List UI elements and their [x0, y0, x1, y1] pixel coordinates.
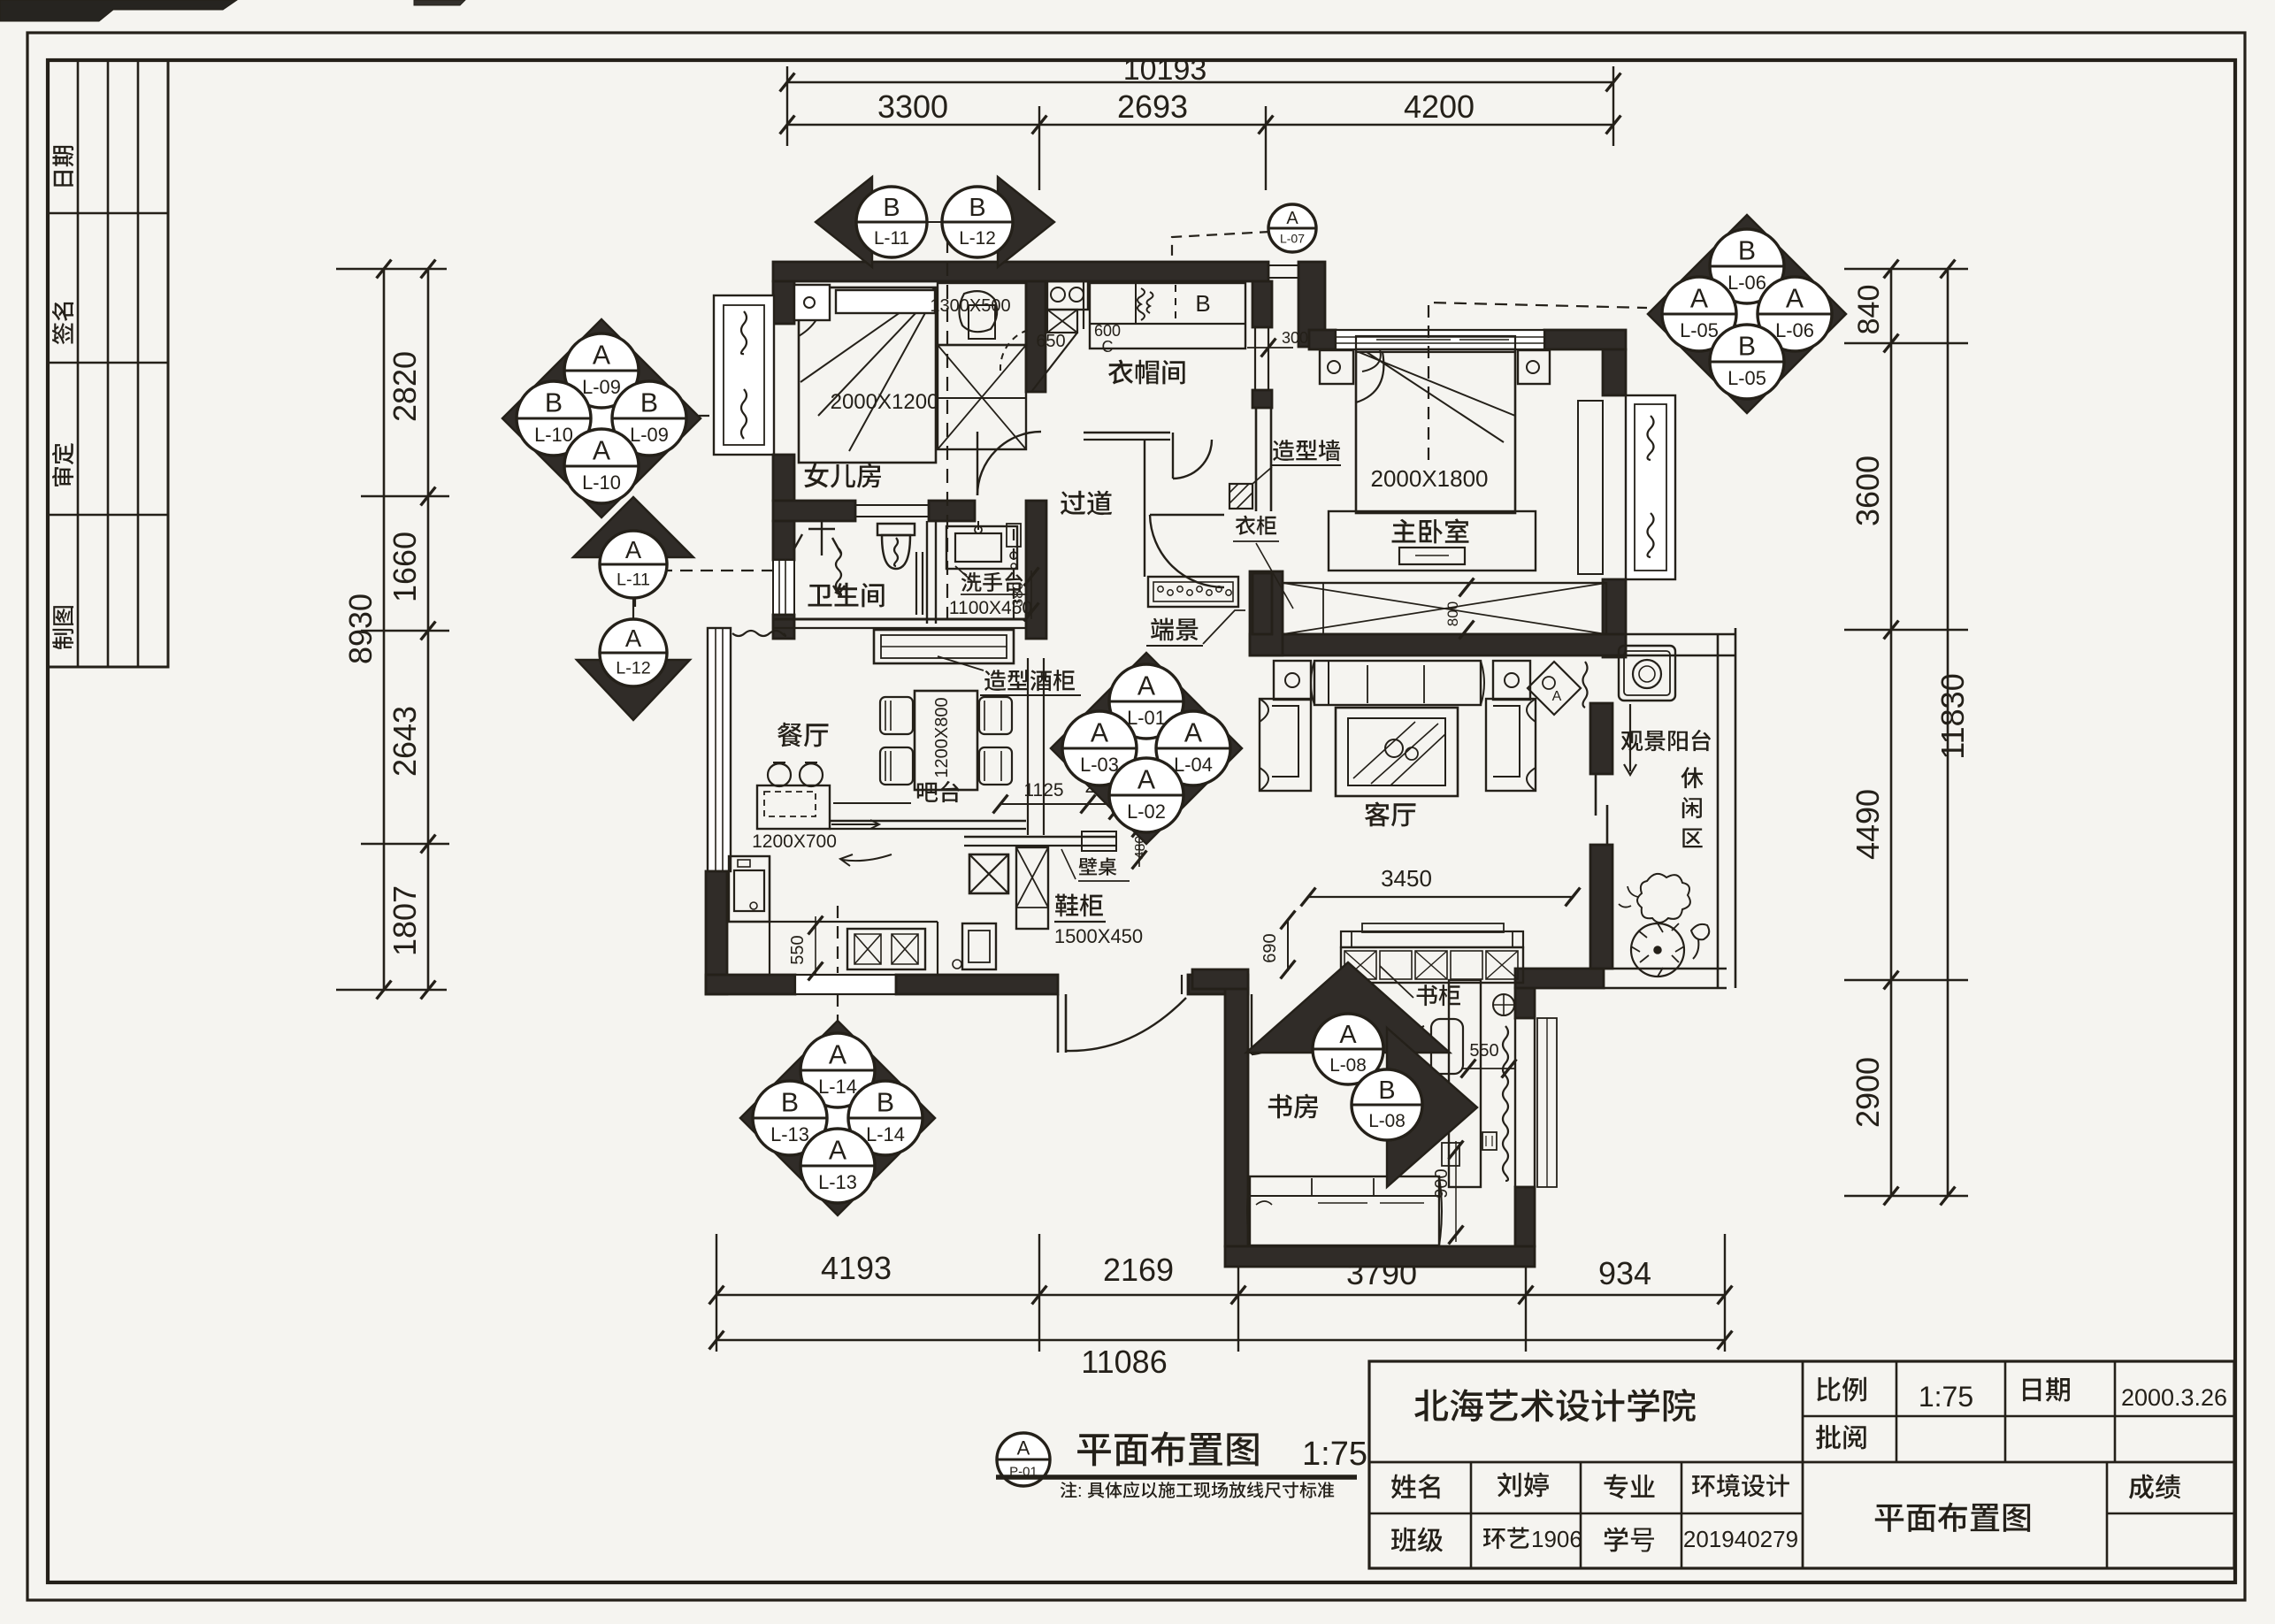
svg-text:B: B — [545, 388, 563, 417]
svg-text:A: A — [829, 1040, 847, 1069]
svg-text:A: A — [1339, 1021, 1357, 1049]
svg-text:L-13: L-13 — [770, 1123, 809, 1145]
svg-text:550: 550 — [1469, 1041, 1498, 1061]
svg-text:10193: 10193 — [1123, 53, 1207, 87]
svg-text:A: A — [829, 1136, 847, 1165]
svg-text:A: A — [625, 624, 642, 652]
svg-text:B: B — [969, 194, 985, 222]
svg-text:B: B — [1738, 332, 1756, 361]
svg-text:L-02: L-02 — [1127, 801, 1166, 823]
svg-text:L-01: L-01 — [1127, 707, 1166, 729]
svg-text:3450: 3450 — [1381, 865, 1432, 892]
svg-text:B: B — [781, 1088, 799, 1117]
svg-text:A: A — [1137, 671, 1156, 701]
svg-text:3600: 3600 — [1850, 456, 1886, 526]
svg-text:2820: 2820 — [387, 351, 423, 422]
svg-text:C: C — [1102, 338, 1114, 356]
svg-text:B: B — [640, 388, 658, 417]
svg-text:4490: 4490 — [1850, 789, 1886, 860]
svg-text:B: B — [883, 194, 900, 222]
svg-text:11830: 11830 — [1934, 673, 1971, 759]
svg-text:L-04: L-04 — [1174, 754, 1213, 776]
svg-text:A: A — [625, 536, 642, 563]
svg-text:2693: 2693 — [1117, 88, 1188, 125]
svg-text:650: 650 — [1036, 332, 1065, 351]
svg-text:2900: 2900 — [1850, 1057, 1886, 1128]
svg-text:1:75: 1:75 — [1919, 1381, 1973, 1413]
svg-text:A: A — [1552, 689, 1562, 704]
svg-text:1906: 1906 — [1531, 1526, 1582, 1552]
svg-text:L-14: L-14 — [866, 1123, 905, 1145]
svg-text:L-03: L-03 — [1080, 754, 1119, 776]
svg-text:300: 300 — [1282, 329, 1308, 347]
svg-text:A: A — [593, 341, 611, 370]
svg-text:B: B — [1195, 290, 1210, 317]
svg-text:A: A — [1184, 718, 1203, 747]
svg-text:L-06: L-06 — [1775, 319, 1814, 341]
svg-text:1200X700: 1200X700 — [752, 831, 837, 852]
svg-text:1500X450: 1500X450 — [1054, 925, 1143, 947]
svg-text::: : — [1077, 1482, 1083, 1501]
svg-text:A: A — [1286, 209, 1298, 228]
svg-text:L-09: L-09 — [630, 424, 669, 446]
svg-text:L-09: L-09 — [582, 376, 621, 398]
svg-text:B: B — [877, 1088, 894, 1117]
svg-text:L-10: L-10 — [534, 424, 573, 446]
svg-text:840: 840 — [1852, 285, 1886, 335]
svg-text:2643: 2643 — [387, 706, 423, 777]
svg-text:2000.3.26: 2000.3.26 — [2121, 1384, 2227, 1411]
svg-text:690: 690 — [1260, 933, 1280, 962]
svg-text:A: A — [1017, 1437, 1030, 1459]
svg-text:L-05: L-05 — [1680, 319, 1719, 341]
svg-text:L-07: L-07 — [1280, 232, 1305, 246]
svg-text:号: 号 — [1629, 1527, 1656, 1556]
svg-text:L-12: L-12 — [616, 659, 651, 678]
svg-text:L-05: L-05 — [1727, 367, 1766, 389]
svg-text:A: A — [1690, 284, 1709, 313]
svg-text:2000X1200: 2000X1200 — [831, 390, 939, 414]
svg-text:2169: 2169 — [1103, 1252, 1174, 1288]
svg-text:L-14: L-14 — [818, 1076, 857, 1098]
svg-text:1200X800: 1200X800 — [932, 697, 952, 778]
svg-text:11086: 11086 — [1081, 1344, 1167, 1380]
svg-text:8930: 8930 — [342, 594, 379, 664]
svg-text:201940279: 201940279 — [1683, 1526, 1798, 1552]
svg-text:A: A — [1091, 718, 1109, 747]
svg-text:L-10: L-10 — [582, 471, 621, 494]
svg-text:A: A — [1786, 284, 1804, 313]
svg-text:L-08: L-08 — [1329, 1055, 1367, 1076]
svg-text:L-11: L-11 — [617, 571, 650, 590]
svg-text:550: 550 — [788, 935, 808, 964]
svg-text:1300X500: 1300X500 — [930, 296, 1010, 316]
svg-text:A: A — [593, 436, 611, 465]
svg-text:1660: 1660 — [387, 532, 423, 602]
svg-text:L-12: L-12 — [959, 228, 996, 249]
svg-text:900: 900 — [1432, 1168, 1452, 1198]
svg-text:934: 934 — [1598, 1255, 1651, 1291]
svg-text:A: A — [1137, 765, 1156, 794]
svg-text:3300: 3300 — [877, 88, 948, 125]
svg-text:B: B — [1378, 1076, 1395, 1105]
svg-text:L-08: L-08 — [1368, 1111, 1406, 1131]
svg-text:4200: 4200 — [1404, 88, 1475, 125]
svg-text:800: 800 — [1444, 601, 1461, 626]
svg-text:L-13: L-13 — [818, 1171, 857, 1193]
svg-text:4193: 4193 — [821, 1250, 892, 1286]
svg-text:2000X1800: 2000X1800 — [1370, 465, 1488, 492]
svg-text:L-06: L-06 — [1727, 272, 1766, 294]
svg-text:L-11: L-11 — [874, 228, 909, 249]
svg-text:1807: 1807 — [387, 885, 423, 956]
svg-text:1:75: 1:75 — [1302, 1436, 1367, 1473]
svg-text:B: B — [1738, 236, 1756, 265]
